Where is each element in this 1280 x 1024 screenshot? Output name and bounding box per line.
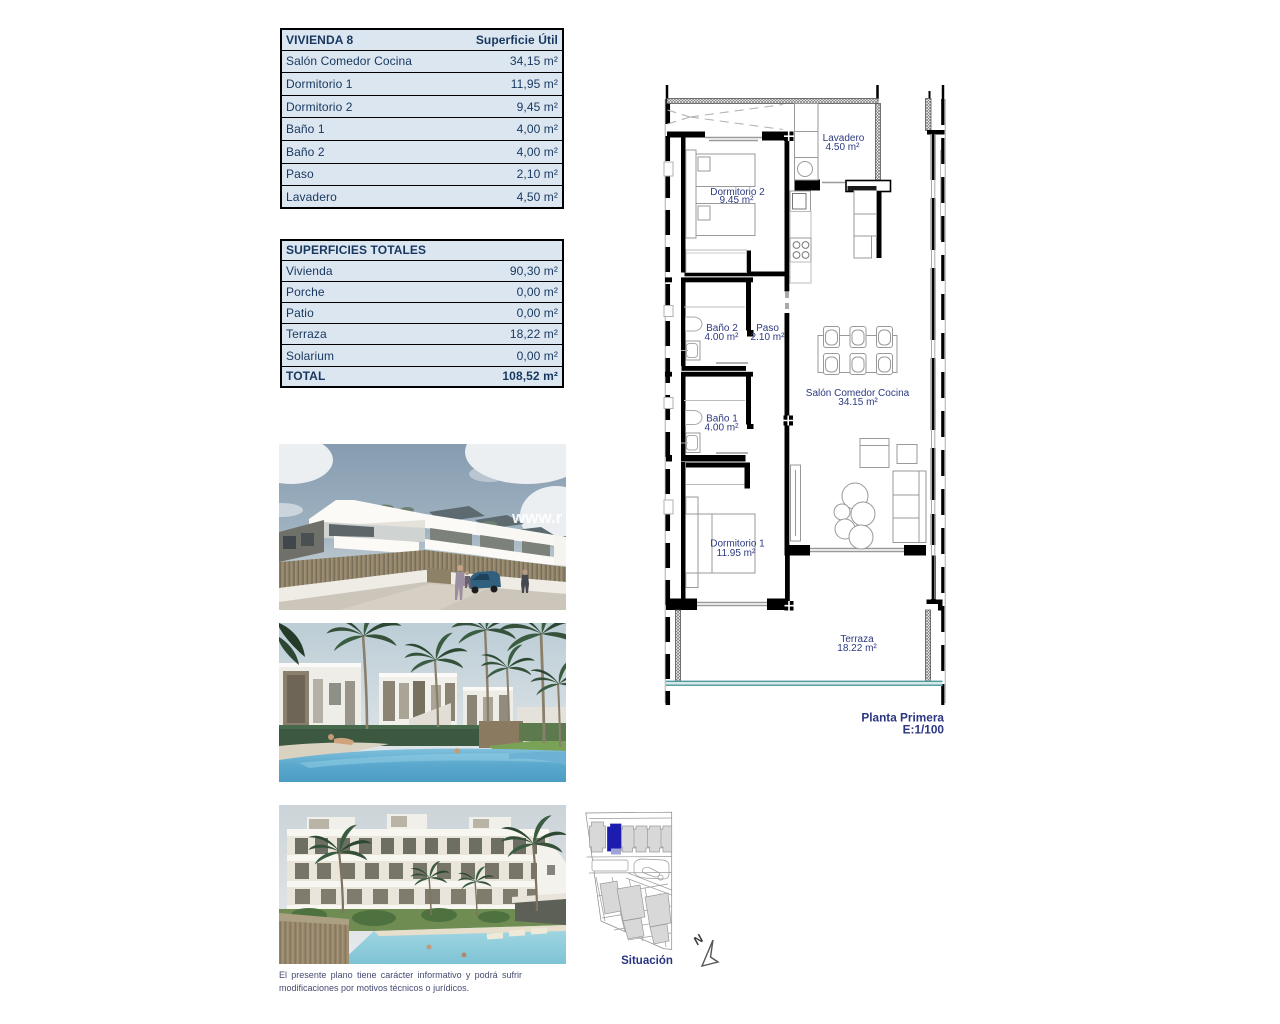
svg-text:9.45 m²: 9.45 m²	[720, 195, 755, 206]
svg-text:N: N	[690, 931, 706, 948]
svg-text:18.22 m²: 18.22 m²	[837, 643, 877, 654]
svg-text:4.00 m²: 4.00 m²	[705, 423, 740, 434]
svg-text:4.00 m²: 4.00 m²	[705, 332, 740, 343]
svg-text:Situación: Situación	[621, 955, 673, 967]
svg-text:11.95 m²: 11.95 m²	[717, 548, 756, 559]
svg-text:34.15 m²: 34.15 m²	[838, 397, 878, 408]
svg-text:www.r: www.r	[511, 508, 563, 527]
svg-text:E:1/100: E:1/100	[903, 723, 945, 737]
svg-text:2.10 m²: 2.10 m²	[751, 332, 786, 343]
svg-text:4.50 m²: 4.50 m²	[826, 142, 861, 153]
